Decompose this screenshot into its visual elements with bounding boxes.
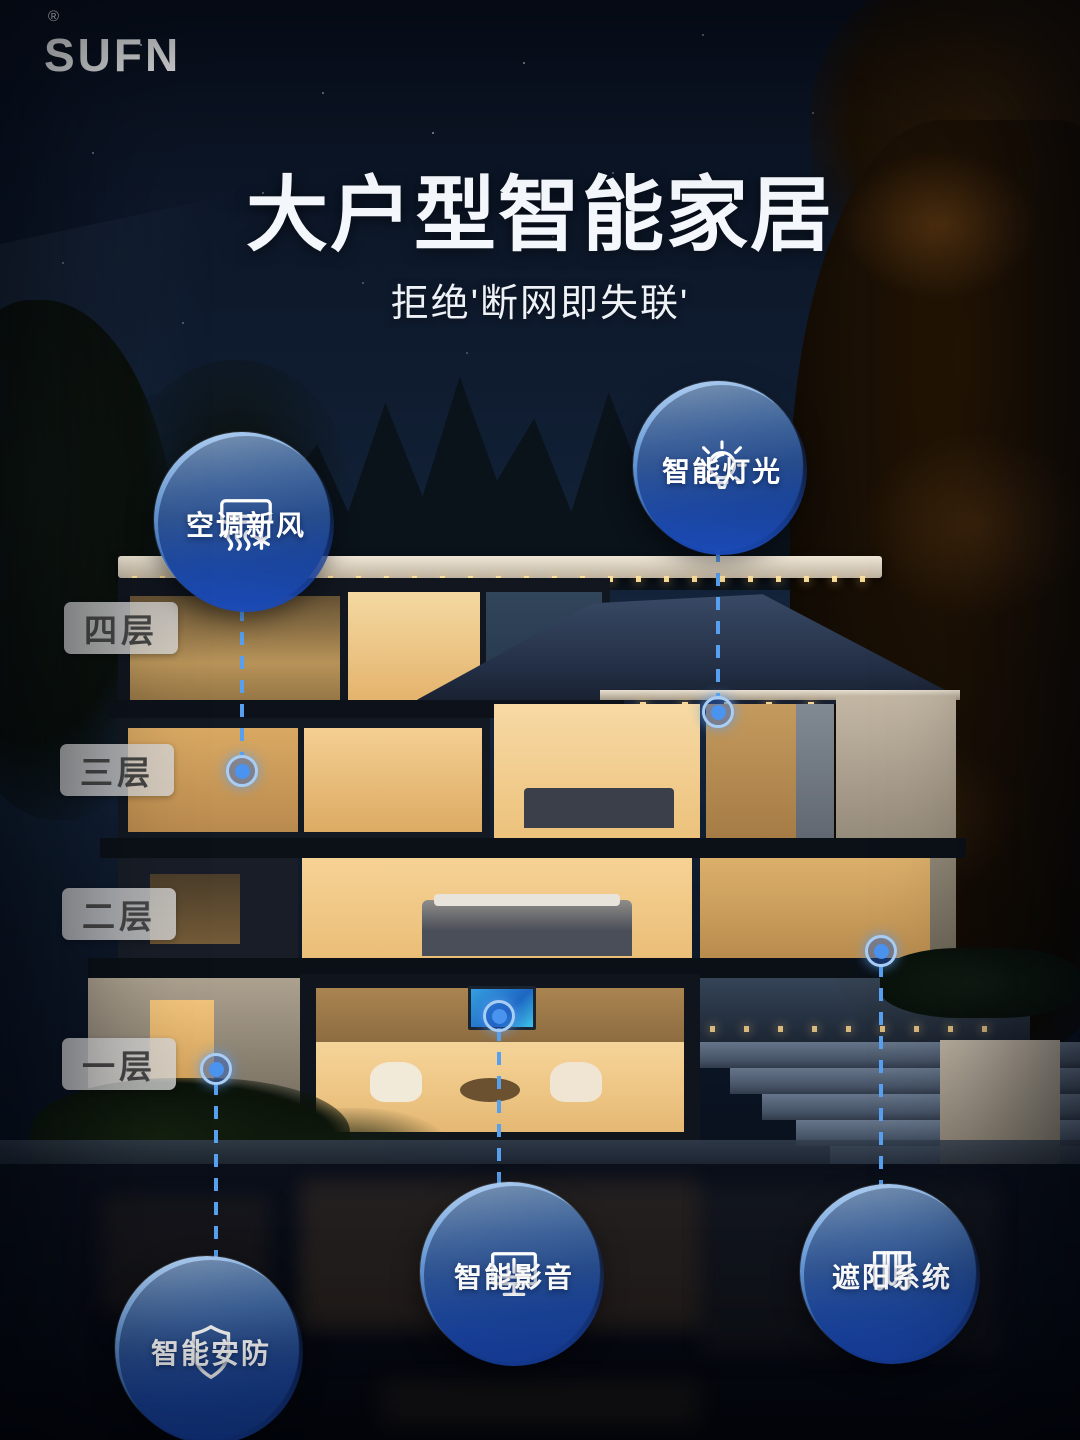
railing-lights [710, 1026, 1010, 1032]
anchor-dot-hvac [226, 755, 258, 787]
bed [524, 788, 674, 828]
connector-line-shading [879, 964, 883, 1186]
connector-line-security [214, 1082, 218, 1258]
callout-circle: 智能灯光 [637, 385, 807, 555]
page-title: 大户型智能家居 [0, 148, 1080, 267]
floor-label-3: 三层 [60, 744, 174, 796]
callout-lighting: 智能灯光 [633, 381, 803, 551]
dining-room [700, 858, 930, 958]
callout-circle: 遮阳系统 [804, 1188, 980, 1364]
bed [422, 900, 632, 956]
anchor-dot-av [483, 1000, 515, 1032]
callout-shading: 遮阳系统 [800, 1184, 976, 1360]
callout-av: 智能影音 [420, 1182, 600, 1362]
curtain [796, 704, 834, 838]
window-glow [304, 728, 482, 832]
page-subtitle: 拒绝'断网即失联' [0, 272, 1080, 327]
callout-label: 智能灯光 [662, 450, 782, 490]
callout-label: 智能影音 [454, 1256, 574, 1296]
callout-label: 智能安防 [151, 1332, 271, 1372]
stars [0, 0, 2, 2]
floor-slab [100, 838, 966, 858]
callout-circle: 智能安防 [119, 1260, 303, 1440]
floor-label-1: 一层 [62, 1038, 176, 1090]
callout-label: 遮阳系统 [832, 1256, 952, 1296]
floor-label-4: 四层 [64, 602, 178, 654]
connector-line-hvac [240, 608, 244, 758]
hedge [880, 948, 1080, 1018]
callout-circle: 智能影音 [424, 1186, 604, 1366]
callout-circle: 空调新风 [158, 436, 334, 612]
callout-security: 智能安防 [115, 1256, 299, 1440]
floor-label-2: 二层 [62, 888, 176, 940]
callout-hvac: 空调新风 [154, 432, 330, 608]
registered-mark: ® [48, 8, 59, 25]
brand-logo-text: SUFN [44, 28, 181, 82]
callout-label: 空调新风 [186, 504, 306, 544]
armchair [370, 1062, 422, 1102]
anchor-dot-security [200, 1053, 232, 1085]
pillow [434, 894, 620, 906]
tree-highlight [860, 430, 1080, 620]
coffee-table [460, 1078, 520, 1102]
master-bedroom [302, 858, 692, 968]
poster: SUFN® 大户型智能家居 拒绝'断网即失联' 四层 三层 二层 一层 [0, 0, 1080, 1440]
connector-line-av [497, 1028, 501, 1184]
bedroom [494, 704, 700, 838]
armchair [550, 1062, 602, 1102]
anchor-dot-lighting [702, 696, 734, 728]
reflection-glow [380, 1380, 700, 1430]
connector-line-lighting [716, 549, 720, 699]
anchor-dot-shading [865, 935, 897, 967]
